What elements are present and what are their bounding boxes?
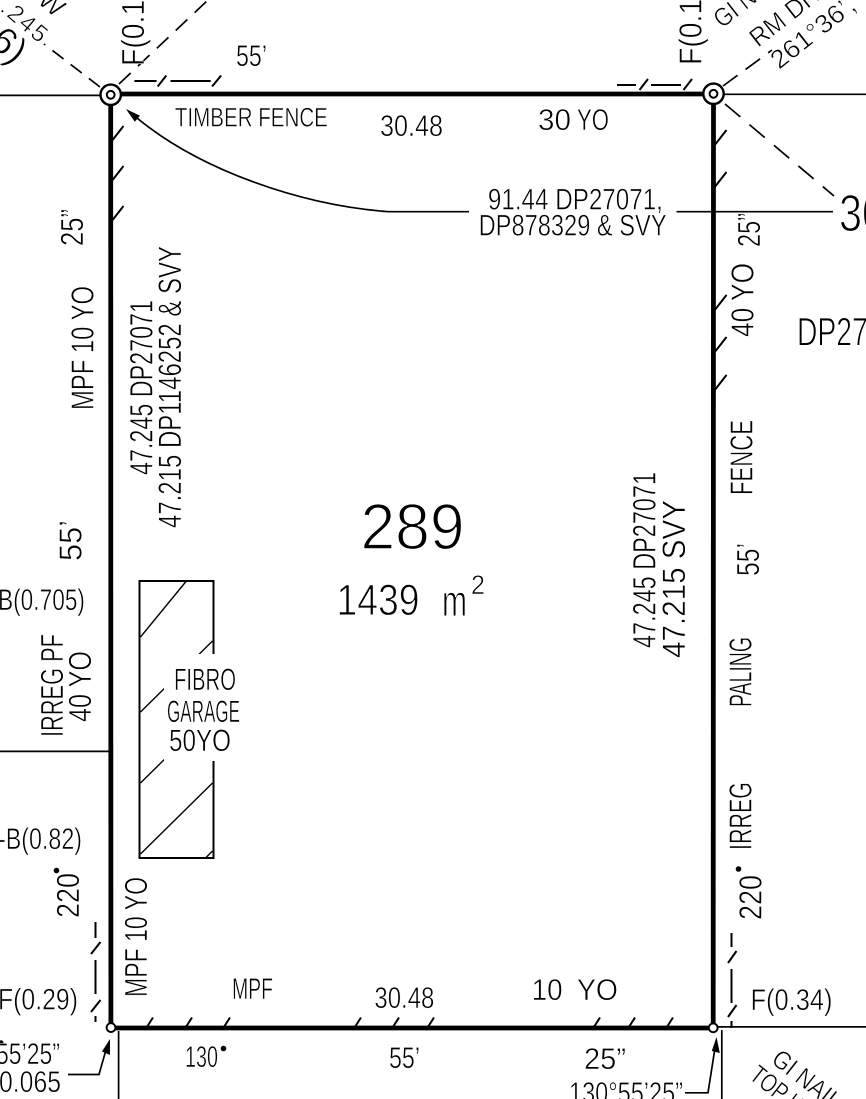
svg-text:FENCE: FENCE [724,420,760,495]
svg-text:130: 130 [185,1041,218,1074]
svg-text:IRREG: IRREG [723,782,759,850]
svg-text:55’: 55’ [53,520,89,561]
svg-text:25”: 25” [584,1043,626,1076]
svg-text:25”: 25” [731,213,767,247]
svg-text:220: 220 [50,873,86,918]
svg-text:40 YO: 40 YO [62,651,98,722]
svg-text:1439: 1439 [337,576,420,625]
svg-text:30: 30 [538,104,571,137]
svg-text:YO: YO [577,104,609,137]
svg-text:2: 2 [471,570,485,600]
svg-text:PALING: PALING [723,637,759,707]
svg-text:F(0.34): F(0.34) [751,984,833,1017]
svg-text:30.48: 30.48 [374,982,434,1015]
svg-text:DP27071: DP27071 [797,311,866,355]
svg-text:55’: 55’ [389,1042,420,1075]
svg-text:25”: 25” [54,209,90,246]
svg-text:47.215 SVY: 47.215 SVY [656,500,692,658]
svg-text:MPF 10 YO: MPF 10 YO [118,877,154,997]
svg-text:55’: 55’ [236,40,267,73]
svg-text:F(0.12: F(0.12 [673,0,709,65]
svg-text:F(0.12: F(0.12 [115,0,151,66]
svg-text:TIMBER FENCE: TIMBER FENCE [175,103,328,133]
svg-text:B(0.705): B(0.705) [0,584,85,617]
svg-text:MPF: MPF [232,973,273,1006]
svg-text:m: m [442,577,467,626]
svg-text:47.215 DP1146252 & SVY: 47.215 DP1146252 & SVY [152,246,188,528]
svg-text:-B(0.82): -B(0.82) [0,823,82,856]
svg-text:30: 30 [839,185,866,243]
svg-text:0.065: 0.065 [0,1066,61,1099]
svg-text:55’: 55’ [730,543,766,576]
svg-text:FIBRO: FIBRO [174,662,236,697]
svg-text:DP878329 & SVY: DP878329 & SVY [479,210,667,243]
svg-text:MPF 10 YO: MPF 10 YO [64,286,100,410]
svg-text:50YO: 50YO [169,723,231,758]
svg-text:220: 220 [733,875,769,920]
svg-text:10: 10 [532,974,563,1007]
svg-text:40 YO: 40 YO [725,263,761,337]
svg-text:130°55’25”: 130°55’25” [569,1077,683,1099]
svg-text:289: 289 [361,490,465,563]
svg-text:YO: YO [577,974,618,1007]
svg-text:F(0.29): F(0.29) [0,984,78,1017]
svg-text:30.48: 30.48 [380,110,443,143]
